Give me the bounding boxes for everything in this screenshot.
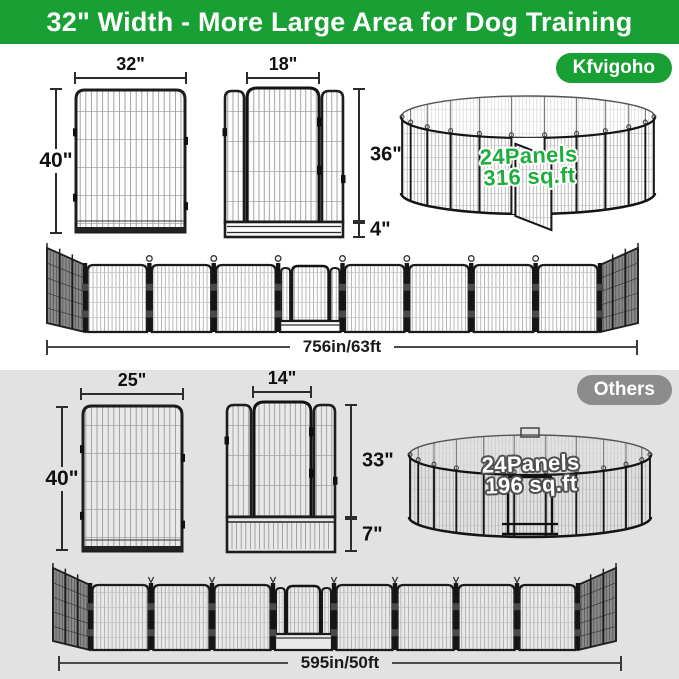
brand-gate-gap-label: 4" [370,219,391,242]
others-panel-width-dim: 25" [80,371,184,395]
dim-line [246,77,320,79]
dim-line [252,391,312,393]
dim-line [350,404,352,518]
dim-tick [620,656,622,671]
dim-tick [636,340,638,355]
header-banner: 32" Width - More Large Area for Dog Trai… [0,0,679,44]
dim-line [358,222,360,238]
dim-line [358,88,360,222]
dim-line [74,77,187,79]
dim-line [80,393,184,395]
dim-line [350,518,352,552]
others-badge: Others [577,375,672,405]
dim-line [55,173,57,234]
dim-line [55,88,57,149]
others-panel-height-dim: 40" [39,406,85,551]
brand-gate-width-dim: 18" [246,55,320,79]
others-row-length-label: 595in/50ft [301,653,379,673]
dim-line [61,491,63,552]
others-gate-width-label: 14" [252,369,312,388]
others-panel-height-label: 40" [45,468,78,490]
product-infographic: 32" Width - More Large Area for Dog Trai… [0,0,679,679]
brand-gate-gap-dim: 4" [353,222,413,238]
brand-fence-row-diagram [0,243,679,348]
others-gate-width-dim: 14" [252,369,312,393]
brand-gate-width-label: 18" [246,55,320,74]
header-title: 32" Width - More Large Area for Dog Trai… [47,7,633,38]
others-gate-diagram [220,396,355,558]
others-row-length-dim: 595in/50ft [58,655,622,671]
dim-line [60,662,288,664]
brand-panel-height-dim: 40" [33,88,79,234]
dim-line [392,662,620,664]
dim-line [394,346,636,348]
brand-row-length-label: 756in/63ft [303,337,381,357]
brand-panel-width-dim: 32" [74,55,187,79]
others-gate-height-label: 33" [362,450,394,473]
brand-badge: Kfvigoho [556,53,672,83]
others-panel-width-label: 25" [80,371,184,390]
brand-panel-width-label: 32" [74,55,187,74]
brand-panel-height-label: 40" [39,150,72,172]
others-gate-gap-label: 7" [362,524,383,547]
dim-line [61,406,63,467]
others-gate-gap-dim: 7" [345,518,405,552]
brand-row-length-dim: 756in/63ft [46,339,638,355]
dim-line [48,346,290,348]
others-gate-height-dim: 33" [345,404,405,518]
brand-gate-diagram [220,82,350,242]
